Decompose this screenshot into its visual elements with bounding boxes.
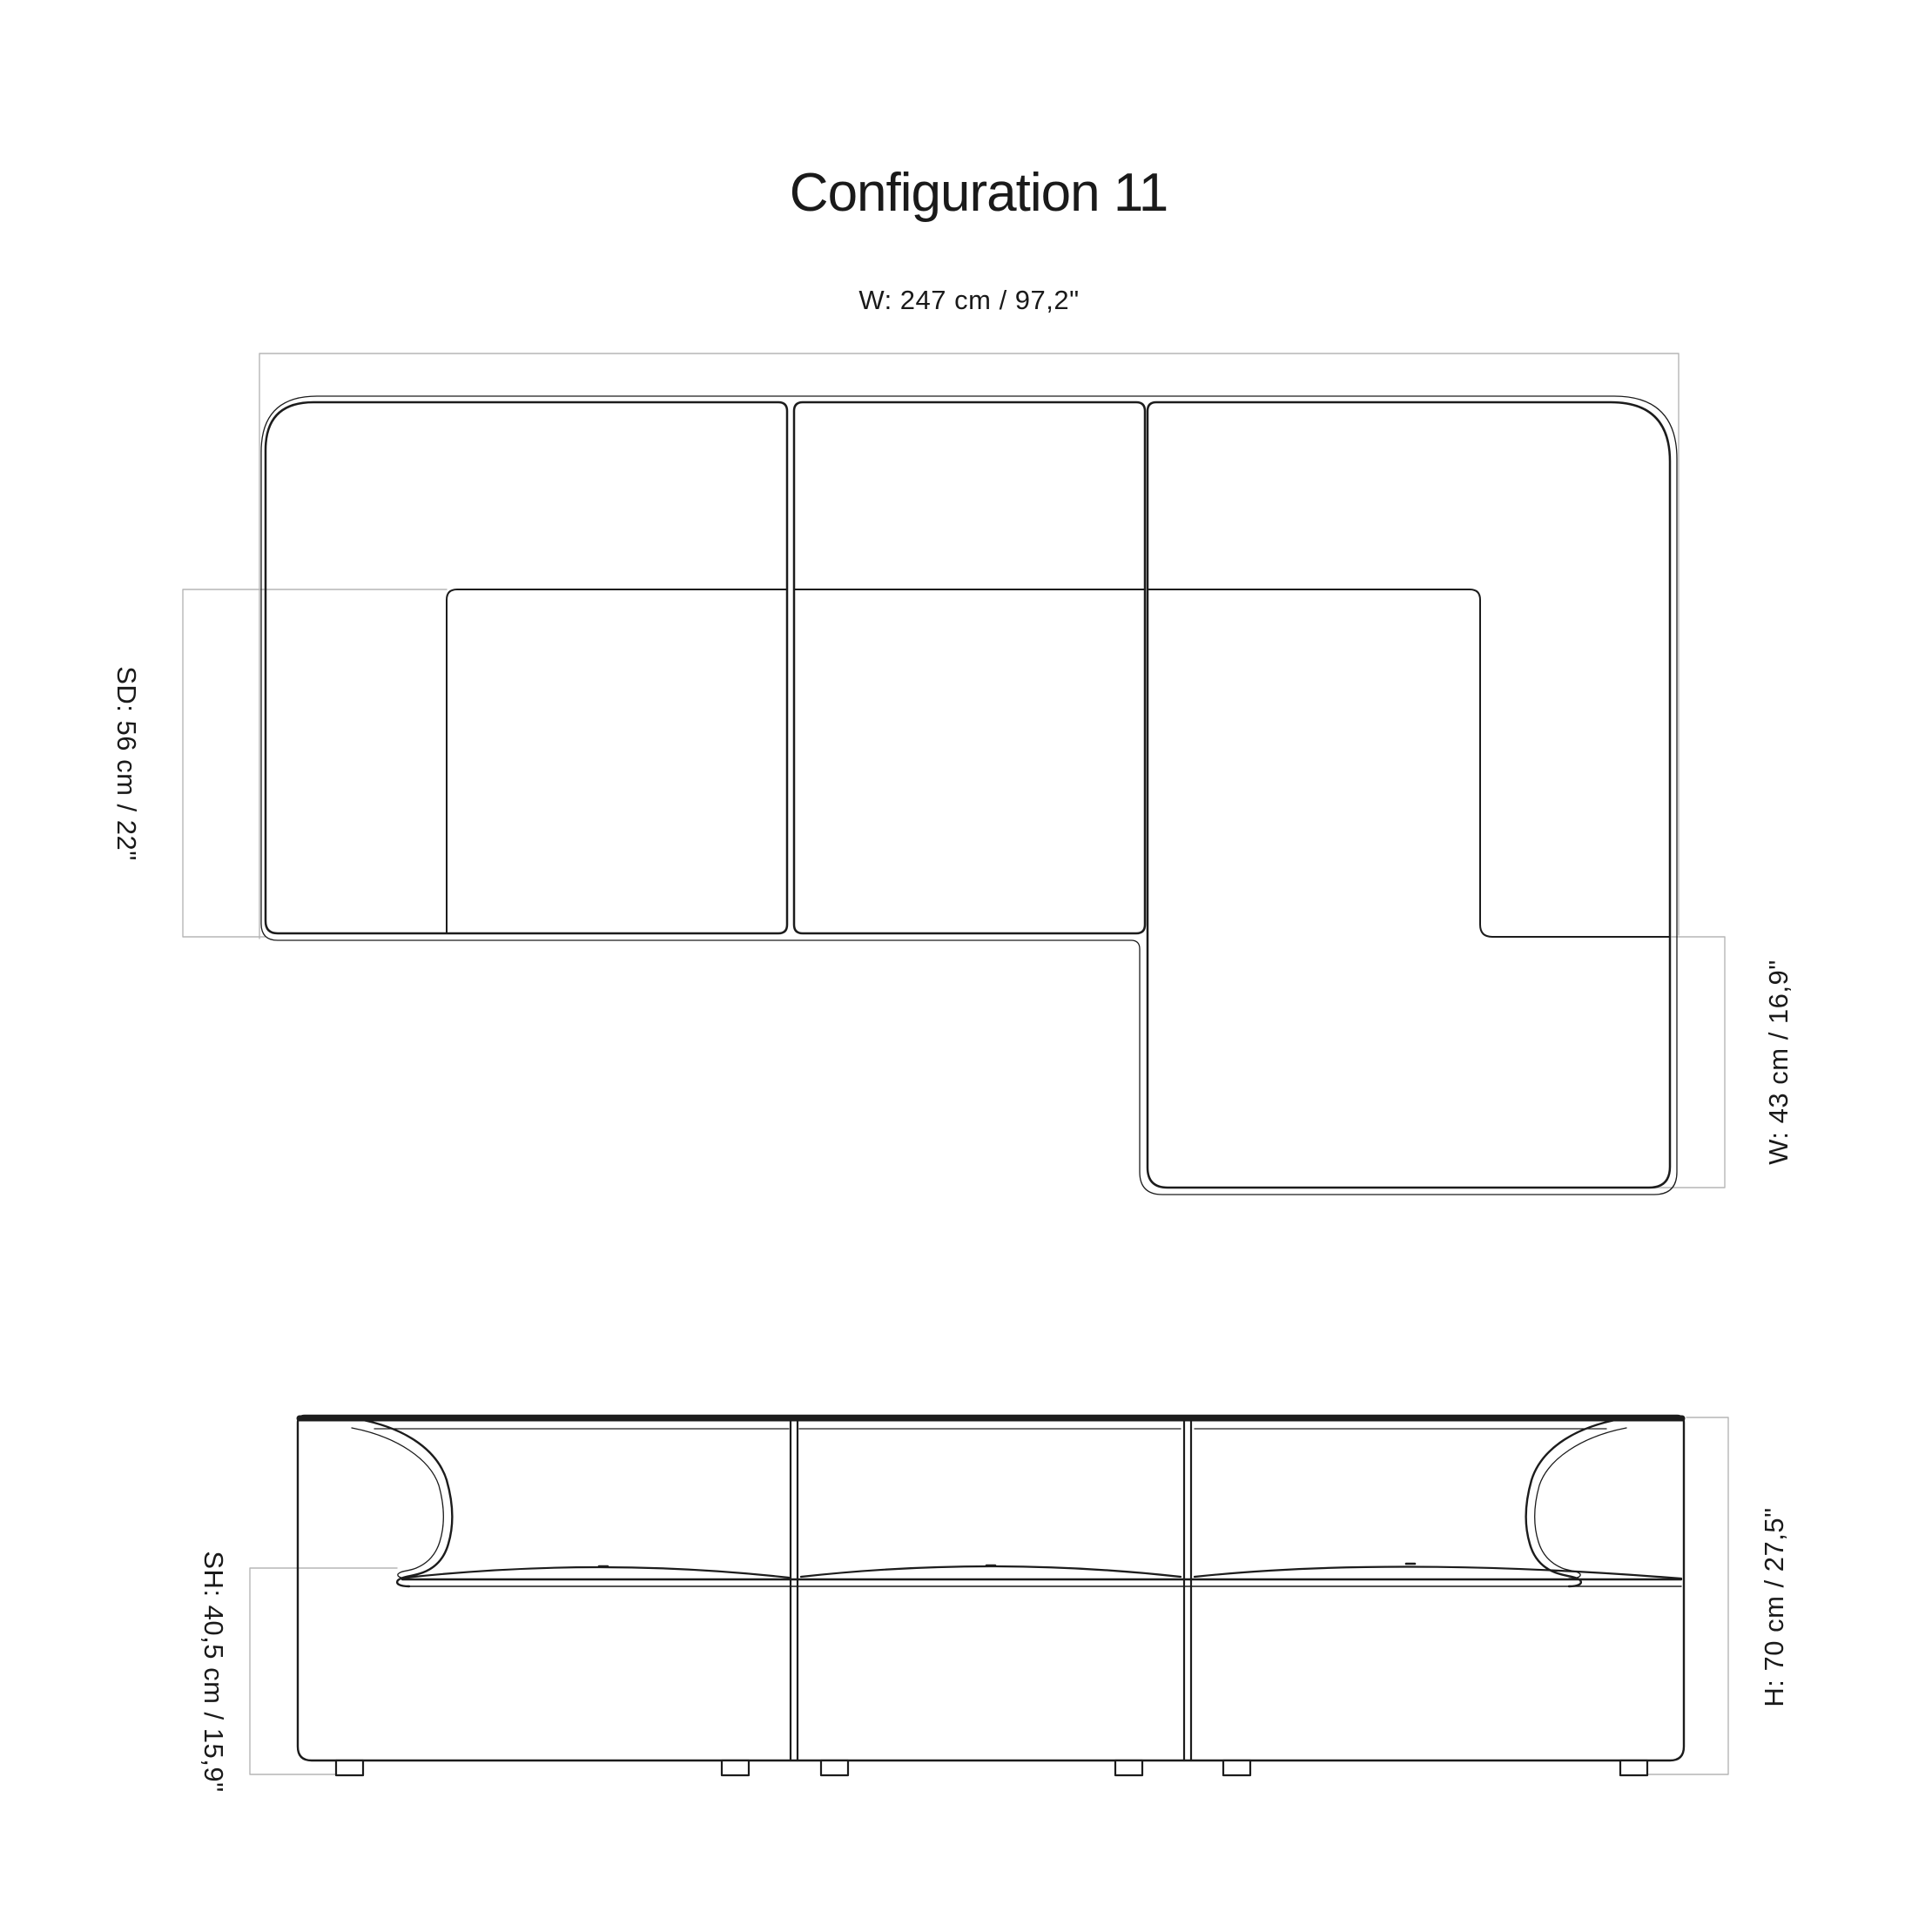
plan-chaise-depth-dimension-bracket [1654,937,1725,1188]
front-right-arm-curve-inner [1535,1428,1626,1579]
plan-chaise-module-outline [1148,402,1670,1188]
front-left-arm-curve-inner [352,1428,443,1579]
front-legs [336,1760,1647,1775]
front-leg-4 [1115,1760,1142,1775]
plan-seat-depth-dimension-bracket [183,589,447,937]
front-leg-1 [336,1760,363,1775]
front-middle-seat-cushion [801,1566,1181,1577]
front-right-arm-curve-outer [1526,1419,1619,1586]
plan-left-module-outline [266,402,787,933]
front-height-dimension-bracket [1646,1417,1728,1774]
front-view [250,1416,1728,1775]
front-seat-height-dimension-bracket [250,1568,397,1774]
front-left-seat-cushion [406,1567,789,1578]
configuration-sheet: Configuration 11 W: 247 cm / 97,2" SD: 5… [0,0,1932,1932]
plan-view [183,353,1725,1195]
front-leg-6 [1620,1760,1647,1775]
front-sofa-outline [298,1416,1684,1760]
plan-chaise-module-backrest-line [1148,589,1670,937]
plan-sofa-silhouette [261,396,1677,1195]
front-leg-2 [722,1760,749,1775]
front-leg-5 [1223,1760,1250,1775]
front-left-arm-curve-outer [359,1419,452,1586]
front-leg-3 [821,1760,848,1775]
front-module-seams [791,1419,1191,1760]
plan-left-module-backrest-line [447,589,787,933]
sofa-technical-drawing [0,0,1932,1932]
front-right-seat-cushion [1195,1566,1681,1579]
plan-middle-module-outline [794,402,1145,933]
plan-width-dimension-bracket [259,353,1679,939]
